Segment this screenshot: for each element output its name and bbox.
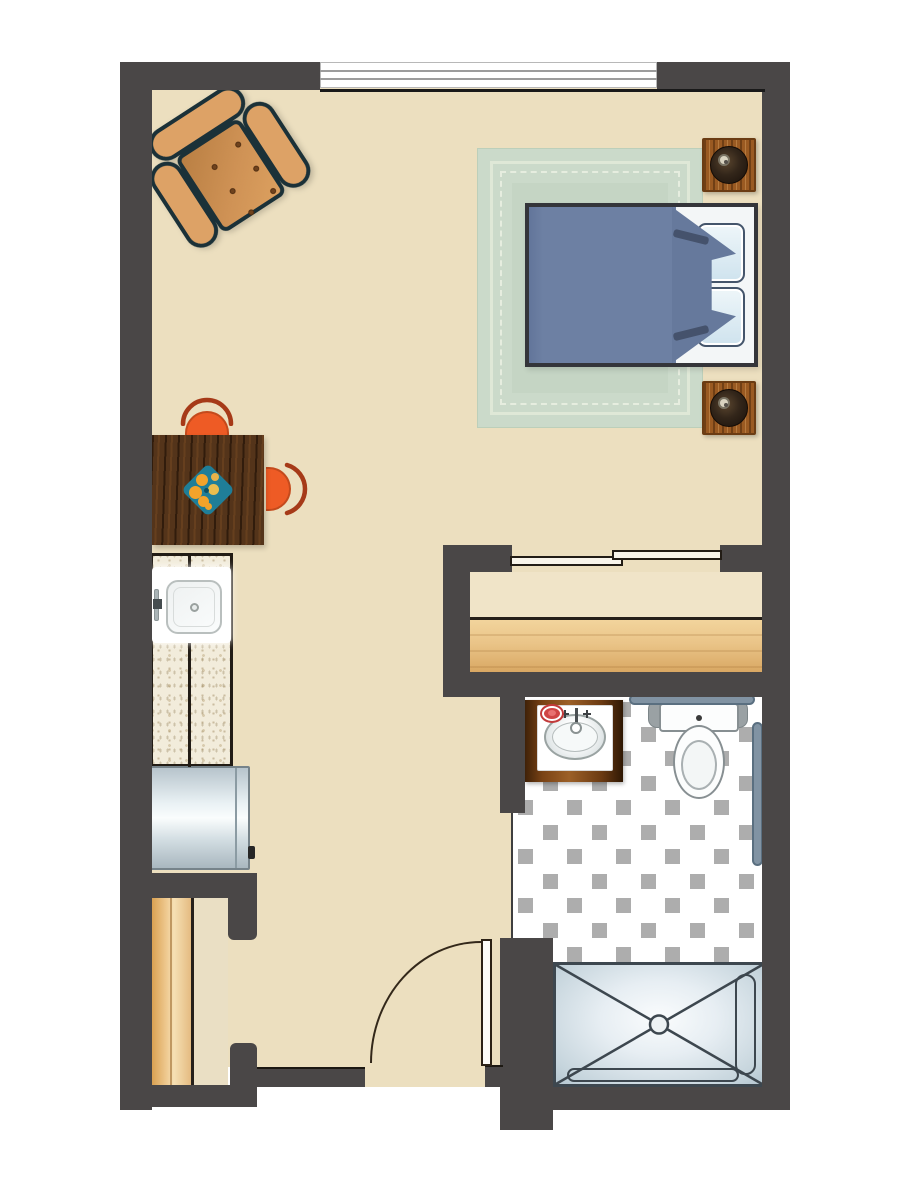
- tile-dot: [641, 776, 656, 791]
- tile-dot: [714, 849, 729, 864]
- tile-dot: [592, 874, 607, 889]
- wardrobe-rod: [470, 617, 762, 620]
- fruit: [208, 484, 219, 495]
- tile-dot: [665, 800, 680, 815]
- tile-dot: [567, 898, 582, 913]
- wall-segment: [120, 873, 257, 898]
- tile-dot: [543, 923, 558, 938]
- bathroom-drain: [570, 722, 582, 734]
- window-sill-line: [320, 89, 765, 92]
- wall-segment: [255, 1067, 365, 1087]
- door-threshold-floor: [365, 1067, 485, 1087]
- tufting-button: [210, 163, 218, 171]
- wall-segment: [500, 938, 553, 1130]
- wall-segment: [485, 1065, 503, 1087]
- tufting-button: [229, 187, 237, 195]
- tile-dot: [739, 874, 754, 889]
- tile-dot: [616, 898, 631, 913]
- lamp-finial: [724, 403, 728, 407]
- shelf-seam: [170, 898, 172, 1085]
- window-pane-line: [320, 70, 657, 72]
- lamp-finial: [724, 160, 728, 164]
- bathroom-doorway-threshold: [511, 813, 513, 938]
- shower-bench: [567, 1068, 739, 1082]
- tile-dot: [665, 947, 680, 962]
- wall-segment: [120, 62, 152, 1110]
- tile-dot: [616, 849, 631, 864]
- tile-dot: [690, 874, 705, 889]
- tufting-button: [247, 208, 255, 216]
- tile-dot: [641, 825, 656, 840]
- tile-dot: [665, 898, 680, 913]
- tile-dot: [714, 898, 729, 913]
- bathroom-faucet: [575, 708, 578, 723]
- wall-segment: [228, 898, 257, 940]
- wall-segment: [720, 545, 763, 572]
- refrigerator-handle: [248, 846, 255, 859]
- toilet-bowl-inner: [681, 740, 717, 790]
- closet-rod: [191, 898, 194, 1085]
- fruit: [211, 473, 219, 481]
- tile-dot: [567, 800, 582, 815]
- tile-dot: [690, 825, 705, 840]
- fruit: [196, 474, 208, 486]
- wardrobe-shelf: [470, 620, 762, 672]
- sink-drain: [190, 603, 199, 612]
- nightstand: [702, 138, 756, 192]
- faucet-handle-cross: [564, 710, 566, 718]
- fruit: [205, 503, 212, 510]
- faucet-handle: [153, 599, 162, 609]
- nightstand: [702, 381, 756, 435]
- tile-dot: [567, 947, 582, 962]
- faucet-handle-cross: [586, 710, 588, 718]
- wall-segment: [500, 697, 525, 813]
- sliding-door: [612, 550, 722, 560]
- floor-plan: [0, 0, 908, 1200]
- tile-dot: [543, 825, 558, 840]
- wall-segment: [443, 672, 790, 697]
- wall-segment: [120, 1085, 257, 1107]
- tile-dot: [739, 923, 754, 938]
- tile-dot: [616, 947, 631, 962]
- tufting-button: [269, 187, 277, 195]
- wall-segment: [553, 1087, 790, 1110]
- refrigerator-door-seam: [235, 768, 237, 868]
- tile-dot: [592, 923, 607, 938]
- tile-dot: [616, 800, 631, 815]
- tufting-button: [252, 164, 260, 172]
- tile-dot: [518, 898, 533, 913]
- table-lamp: [710, 146, 748, 184]
- bed-comforter: [529, 207, 676, 363]
- shower-bench: [735, 974, 756, 1075]
- tufting-button: [234, 140, 242, 148]
- entry-closet-shelf: [152, 898, 192, 1085]
- tile-dot: [543, 874, 558, 889]
- tile-dot: [665, 849, 680, 864]
- tile-dot: [641, 874, 656, 889]
- tile-dot: [592, 825, 607, 840]
- sliding-door: [510, 556, 623, 566]
- tile-dot: [518, 849, 533, 864]
- tile-dot: [714, 947, 729, 962]
- tile-dot: [641, 727, 656, 742]
- tile-dot: [641, 923, 656, 938]
- flush-button: [696, 715, 702, 721]
- tile-dot: [567, 849, 582, 864]
- floor-plan-canvas: [0, 0, 908, 1200]
- window-pane-line: [320, 78, 657, 80]
- bowl-center: [204, 488, 209, 493]
- tile-dot: [714, 800, 729, 815]
- tile-dot: [690, 923, 705, 938]
- bed: [525, 203, 758, 367]
- table-lamp: [710, 389, 748, 427]
- soap: [548, 710, 556, 716]
- window: [320, 62, 657, 88]
- wall-segment: [762, 62, 790, 1110]
- entry-door: [481, 939, 492, 1066]
